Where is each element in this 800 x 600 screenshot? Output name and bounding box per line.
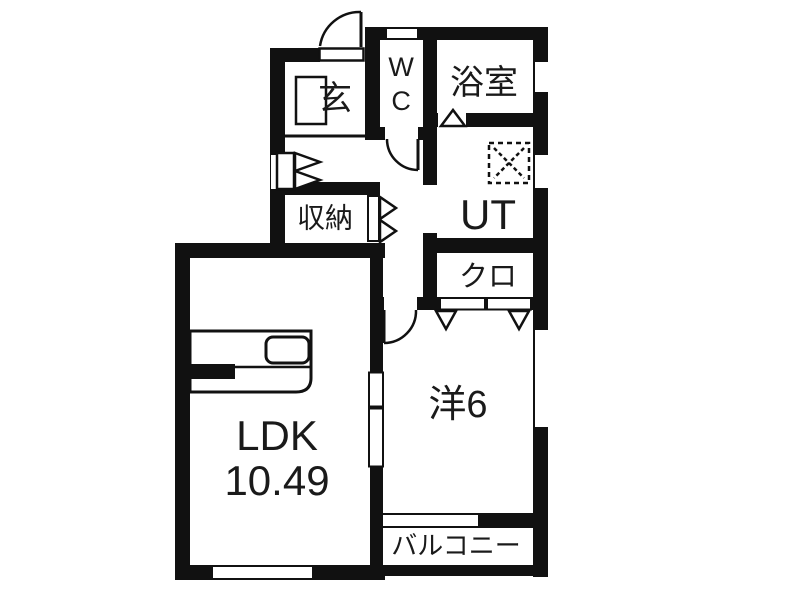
kitchen-counter [190, 331, 311, 392]
ut-door-opening [423, 185, 437, 233]
washing-machine-x-icon [494, 148, 524, 178]
wall-ldk-western-divider [370, 258, 383, 580]
wc-door-opening [385, 127, 418, 140]
wc-door-arc-icon [387, 139, 418, 170]
kitchen-sink-icon [266, 337, 309, 363]
room-label-closet: クロ [459, 262, 517, 292]
storage-door-opening [367, 195, 380, 243]
genkan-cabinet-opening [271, 155, 285, 189]
floorplan: 玄 WC 浴室 収納 UT クロ LDK 10.49 洋6 バルコニー [0, 0, 800, 600]
room-label-bath: 浴室 [450, 66, 518, 102]
wall-wc-left [365, 27, 380, 140]
bath-window [535, 62, 548, 92]
western-door-opening [384, 297, 417, 310]
wc-window [387, 29, 417, 38]
room-label-balcony: バルコニー [391, 532, 520, 559]
wall-genkan-left [270, 48, 285, 258]
room-size-ldk: 10.49 [224, 459, 329, 503]
western-side-window [535, 330, 548, 427]
entrance-door-arc-icon [320, 12, 361, 46]
room-label-western: 洋6 [428, 386, 487, 426]
room-label-wc: WC [387, 52, 415, 120]
wall-balcony-bottom [370, 565, 548, 576]
washing-machine-x-icon [494, 148, 524, 178]
entrance-door-opening [320, 48, 365, 62]
wall-storage-top [270, 182, 380, 195]
wall-ldk-top [175, 243, 385, 258]
ldk-window [213, 567, 312, 578]
storage-bifold-icon [380, 197, 396, 219]
western-door-arc-icon [384, 310, 416, 343]
storage-bifold-icon [380, 220, 396, 242]
balcony-glass-door [383, 515, 478, 526]
genkan-cabinet-bifold-icon [295, 153, 320, 171]
room-label-ldk: LDK [236, 414, 318, 458]
room-label-storage: 収納 [297, 203, 353, 232]
room-label-genkan: 玄 [318, 82, 352, 118]
closet-door-v-icon [509, 311, 529, 329]
wall-ut-bottom [423, 238, 548, 253]
room-label-utility: UT [460, 193, 516, 237]
wall-ldk-left [175, 243, 190, 580]
ut-window [535, 155, 548, 188]
bath-door-opening [438, 113, 466, 127]
washing-machine-icon [489, 143, 529, 183]
closet-door-v-icon [436, 311, 456, 329]
